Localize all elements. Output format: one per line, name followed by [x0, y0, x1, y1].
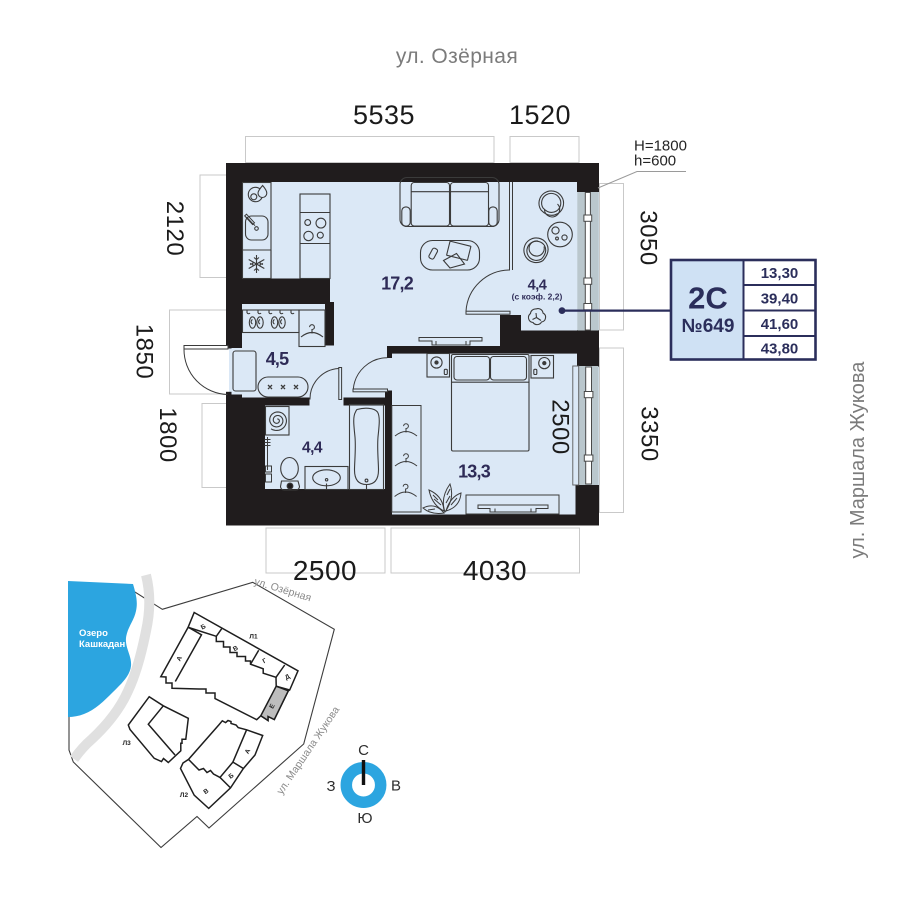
svg-text:ул. Маршала Жукова: ул. Маршала Жукова	[847, 361, 869, 559]
svg-text:2C: 2C	[688, 281, 728, 316]
svg-text:h=600: h=600	[634, 153, 676, 170]
svg-text:Л2: Л2	[180, 792, 189, 799]
svg-text:1800: 1800	[154, 407, 181, 462]
svg-text:4030: 4030	[463, 555, 527, 586]
svg-text:4,4: 4,4	[302, 440, 323, 457]
svg-text:№649: №649	[682, 316, 735, 337]
svg-text:3350: 3350	[636, 406, 663, 461]
svg-text:З: З	[326, 778, 335, 795]
svg-text:43,80: 43,80	[761, 341, 799, 358]
svg-text:41,60: 41,60	[761, 316, 799, 333]
svg-text:17,2: 17,2	[381, 274, 414, 294]
svg-text:(с коэф. 2,2): (с коэф. 2,2)	[512, 292, 563, 302]
svg-text:2500: 2500	[547, 399, 574, 454]
svg-text:3050: 3050	[635, 210, 662, 265]
svg-text:В: В	[391, 778, 401, 795]
svg-text:13,3: 13,3	[458, 462, 491, 482]
svg-text:2500: 2500	[293, 555, 357, 586]
svg-text:39,40: 39,40	[761, 291, 799, 308]
svg-text:Озеро: Озеро	[79, 628, 108, 639]
svg-text:Л1: Л1	[249, 634, 258, 641]
svg-text:5535: 5535	[353, 100, 415, 130]
svg-text:1850: 1850	[131, 324, 158, 379]
svg-text:Л3: Л3	[123, 740, 132, 747]
svg-text:1520: 1520	[509, 100, 571, 130]
svg-text:2120: 2120	[161, 201, 188, 256]
svg-text:Ю: Ю	[357, 810, 372, 827]
svg-text:Кашкадан: Кашкадан	[79, 639, 125, 650]
svg-text:ул. Озёрная: ул. Озёрная	[396, 45, 518, 68]
svg-text:С: С	[358, 742, 369, 759]
svg-text:13,30: 13,30	[761, 265, 799, 282]
svg-text:4,5: 4,5	[266, 349, 289, 369]
